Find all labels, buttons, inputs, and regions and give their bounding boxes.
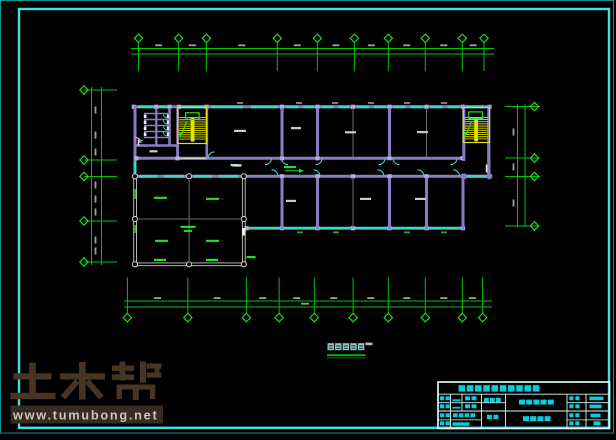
svg-text:www.tumubong.net: www.tumubong.net (12, 407, 158, 422)
